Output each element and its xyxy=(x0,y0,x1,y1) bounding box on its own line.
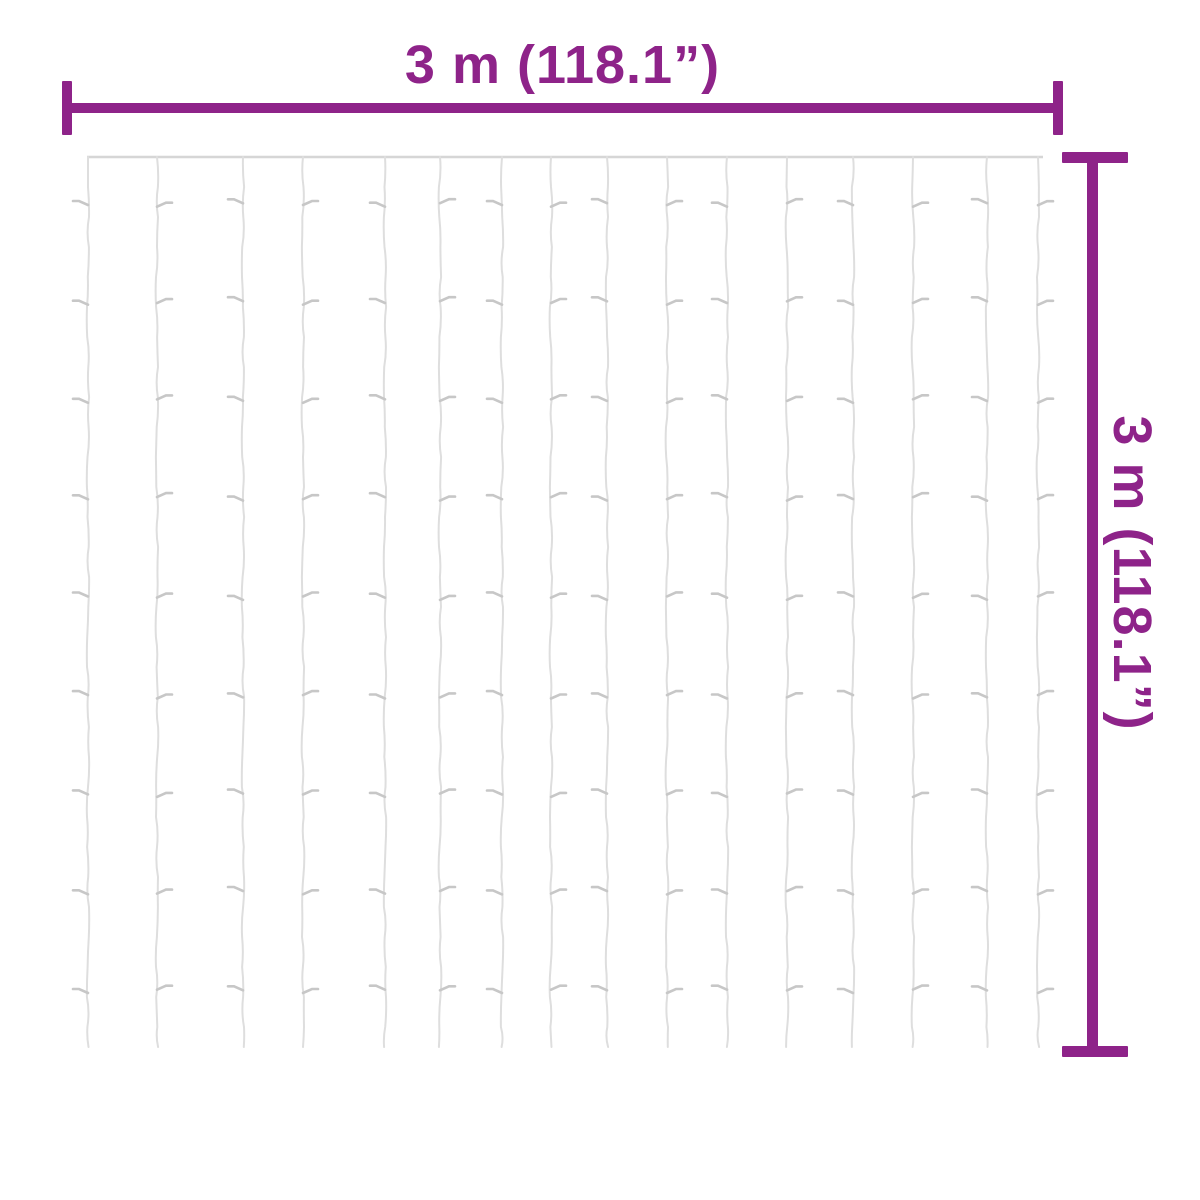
width-dimension-label: 3 m (118.1”) xyxy=(62,38,1063,92)
curtain-lights-graphic xyxy=(0,0,1200,1200)
height-dimension-bottom-cap xyxy=(1062,1046,1128,1057)
height-dimension-line xyxy=(1087,152,1098,1057)
width-dimension-right-cap xyxy=(1053,81,1063,135)
product-dimension-diagram: 3 m (118.1”) 3 m (118.1”) xyxy=(0,0,1200,1200)
width-dimension-line xyxy=(62,103,1063,113)
height-dimension-label: 3 m (118.1”) xyxy=(1105,415,1159,730)
